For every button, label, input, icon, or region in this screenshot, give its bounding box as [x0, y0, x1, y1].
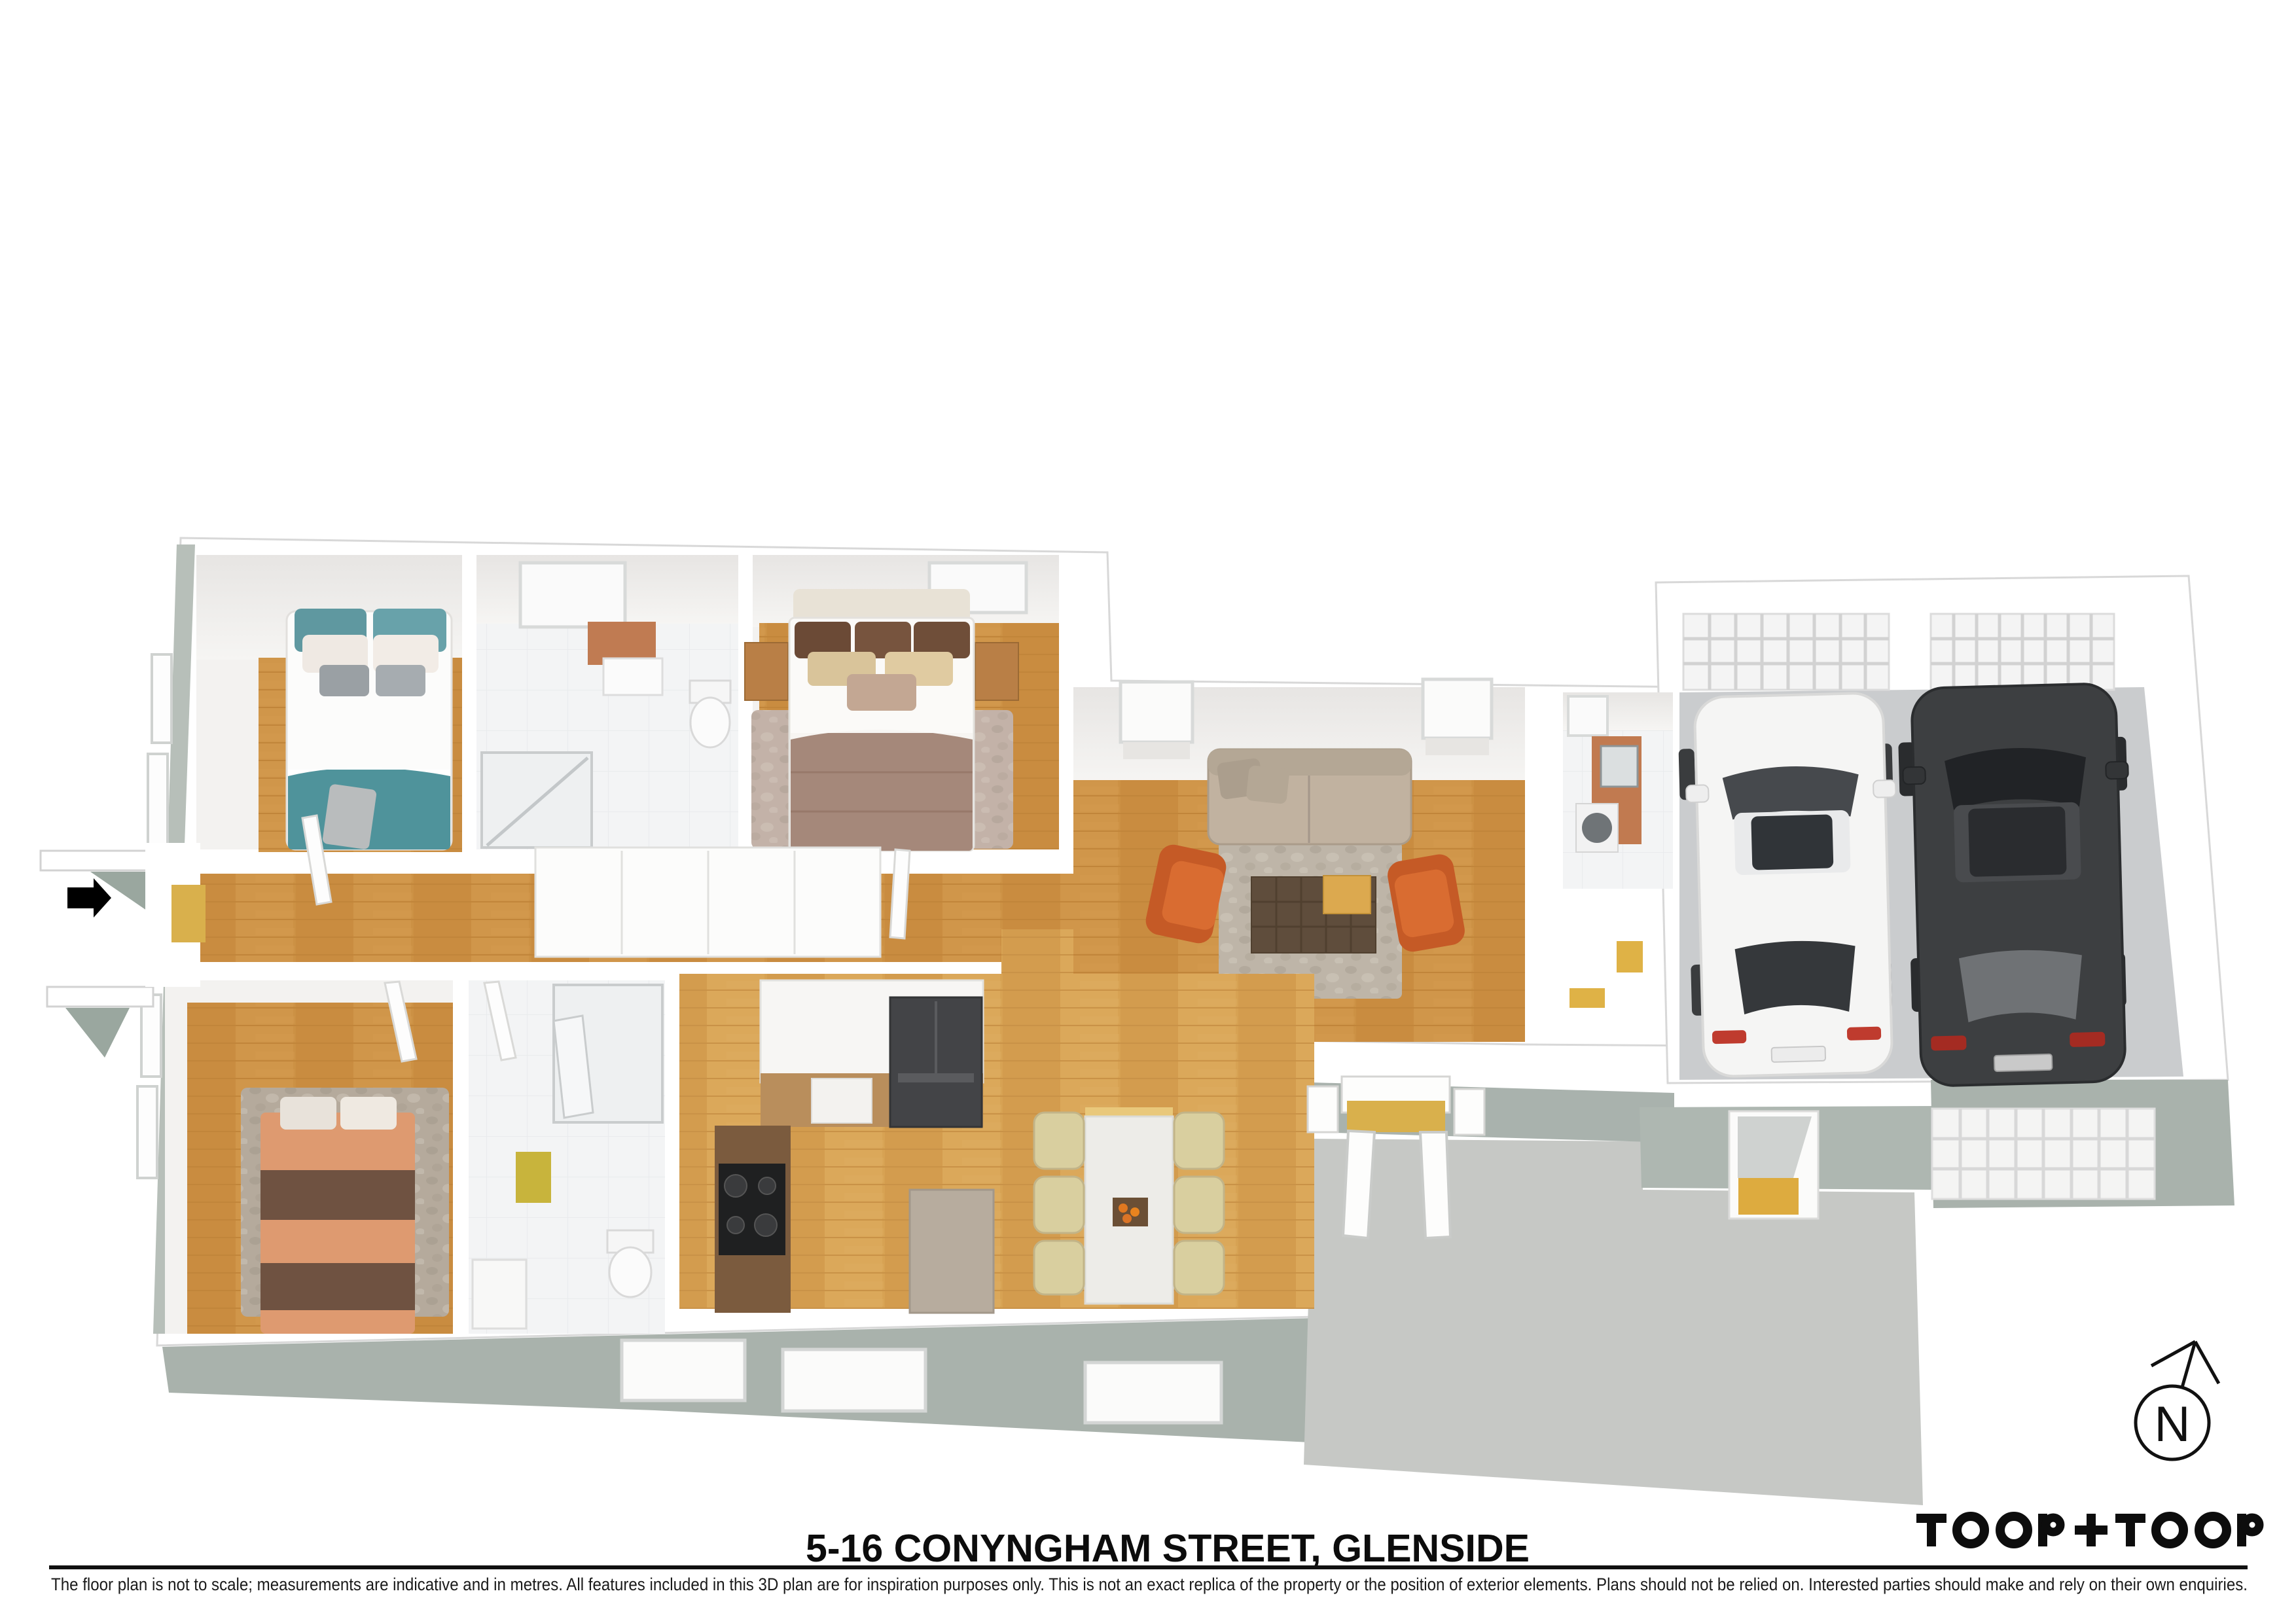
svg-text:5-16 CONYNGHAM STREET, GLENSID: 5-16 CONYNGHAM STREET, GLENSIDE [806, 1527, 1530, 1570]
svg-text:The floor plan is not to scale: The floor plan is not to scale; measurem… [51, 1575, 2248, 1594]
svg-text:N: N [2155, 1397, 2191, 1452]
